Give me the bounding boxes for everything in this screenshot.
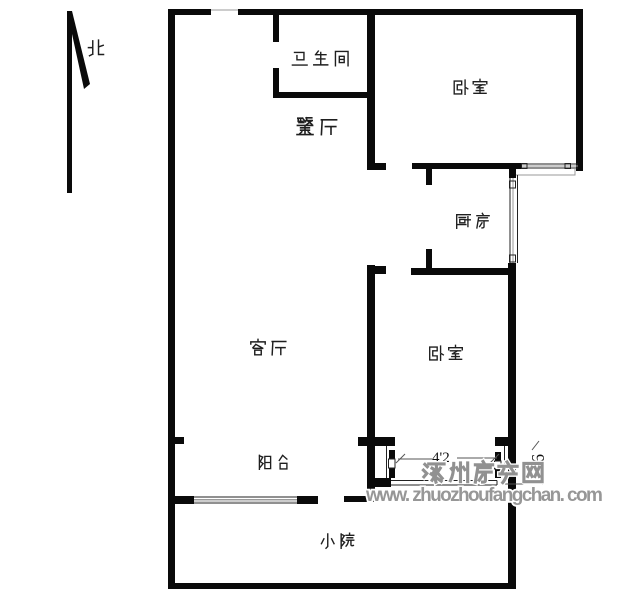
svg-text:www. zhuozhoufangchan. com: www. zhuozhoufangchan. com	[365, 485, 602, 506]
